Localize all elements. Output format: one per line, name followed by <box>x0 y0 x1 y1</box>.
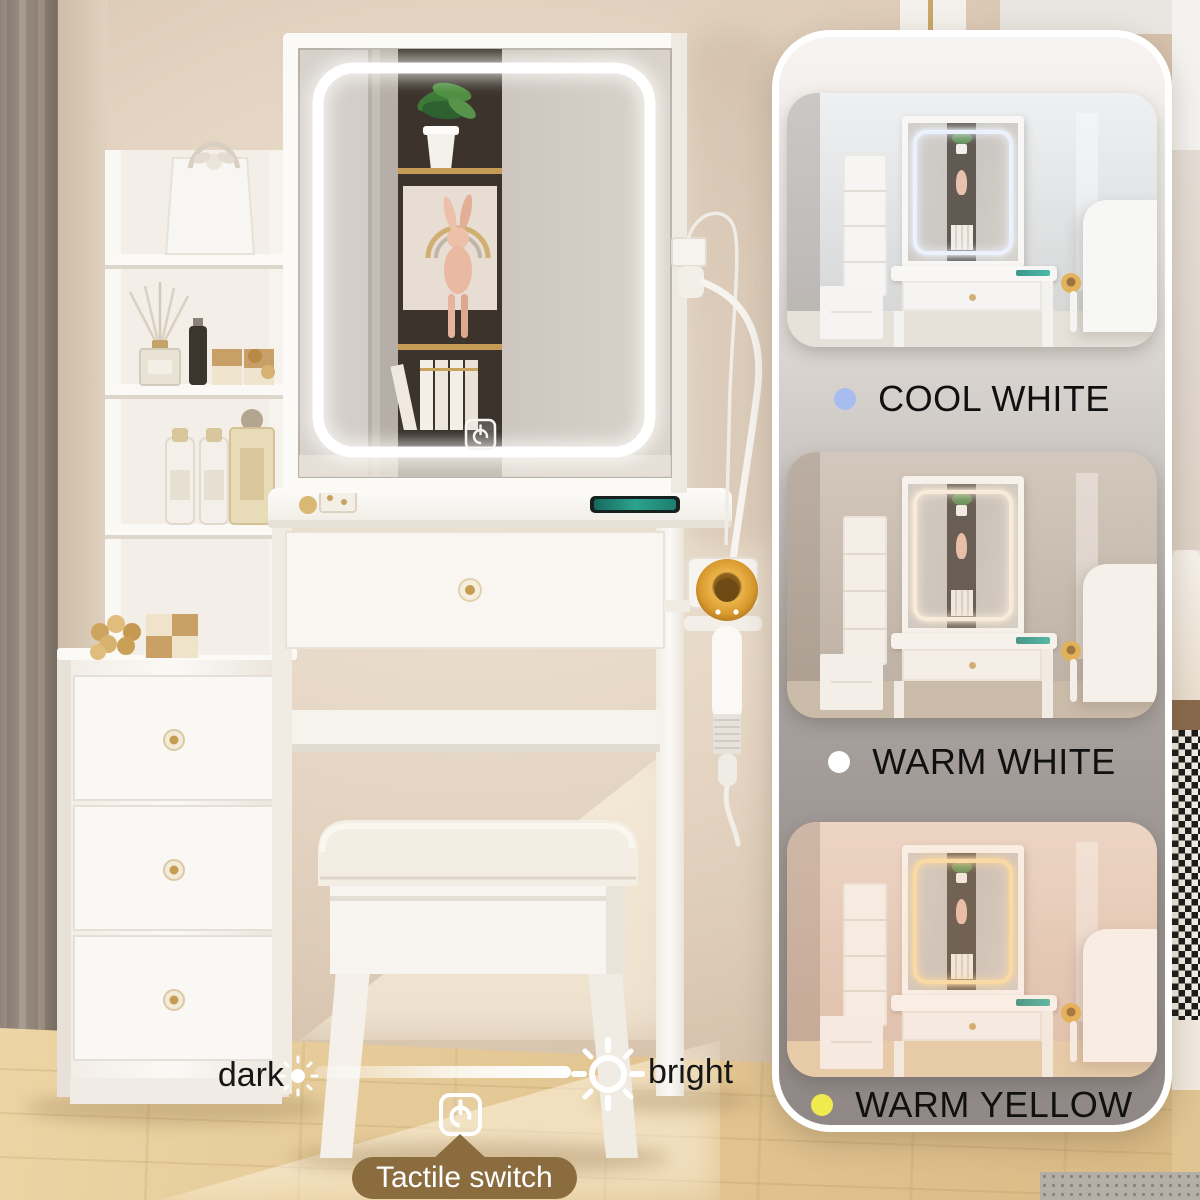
mode-label: COOL WHITE <box>878 378 1110 420</box>
cabinet-drawer-2 <box>74 806 276 930</box>
tactile-switch-label: Tactile switch <box>376 1161 553 1195</box>
sun-icon-dim <box>279 1057 317 1095</box>
shelf-board <box>105 384 285 395</box>
stool-base <box>330 882 626 974</box>
mode-dot <box>834 388 856 410</box>
mini-led-strip <box>913 130 1013 255</box>
reflected-plant-pot <box>423 126 459 135</box>
brightness-bar <box>315 1066 571 1078</box>
shelf-board <box>105 524 285 535</box>
mini-shelf-tower <box>843 154 887 296</box>
bed <box>1083 200 1157 332</box>
bed <box>1083 929 1157 1062</box>
mini-led-strip <box>913 490 1013 621</box>
mode-row-cool-white: COOL WHITE <box>779 377 1165 421</box>
shelf-board <box>105 254 285 265</box>
mini-led-mirror <box>902 476 1024 636</box>
mini-shelf-tower <box>843 516 887 665</box>
mini-hair-dryer <box>1061 1003 1081 1023</box>
smartphone <box>590 496 680 513</box>
mini-led-strip <box>913 859 1013 984</box>
bed <box>1083 564 1157 702</box>
mini-led-mirror <box>902 845 1024 998</box>
shelf-tower <box>90 144 285 660</box>
hair-dryer <box>696 559 758 844</box>
mini-hair-dryer <box>1061 641 1081 661</box>
gift-bag <box>166 144 254 254</box>
vanity-product-image: dark bright Tactile switch <box>0 0 1200 1200</box>
mode-label: WARM YELLOW <box>855 1084 1133 1126</box>
stool-left-leg <box>320 970 370 1158</box>
mini-shelf-tower <box>843 883 887 1026</box>
mode-thumbnail-warm-yellow <box>787 822 1157 1077</box>
mode-row-warm-white: WARM WHITE <box>779 740 1165 784</box>
mode-label: WARM WHITE <box>872 741 1116 783</box>
power-touch-icon <box>466 420 495 449</box>
mode-dot <box>828 751 850 773</box>
power-icon <box>441 1095 480 1134</box>
thumbnail-scene <box>787 93 1157 347</box>
mode-thumbnail-warm-white <box>787 452 1157 718</box>
mini-led-mirror <box>902 116 1024 268</box>
storage-cabinet <box>57 648 297 1104</box>
light-mode-panel: COOL WHITE <box>772 30 1172 1132</box>
cabinet-drawer-1 <box>74 676 276 800</box>
thumbnail-scene <box>787 822 1157 1077</box>
mode-thumbnail-cool-white <box>787 93 1157 347</box>
dryer-cable <box>726 786 738 844</box>
mini-hair-dryer <box>1061 273 1081 293</box>
led-mirror <box>283 33 687 493</box>
tactile-switch-pill: Tactile switch <box>352 1157 577 1199</box>
serum-bottle <box>189 318 207 385</box>
stool-cushion <box>318 820 638 886</box>
cabinet-drawer-3 <box>74 936 276 1060</box>
thumbnail-scene <box>787 452 1157 718</box>
mode-row-warm-yellow: WARM YELLOW <box>779 1083 1165 1127</box>
dark-label: dark <box>200 1058 284 1092</box>
bright-label: bright <box>648 1055 733 1089</box>
mode-dot <box>811 1094 833 1116</box>
dryer-handle <box>712 626 742 722</box>
